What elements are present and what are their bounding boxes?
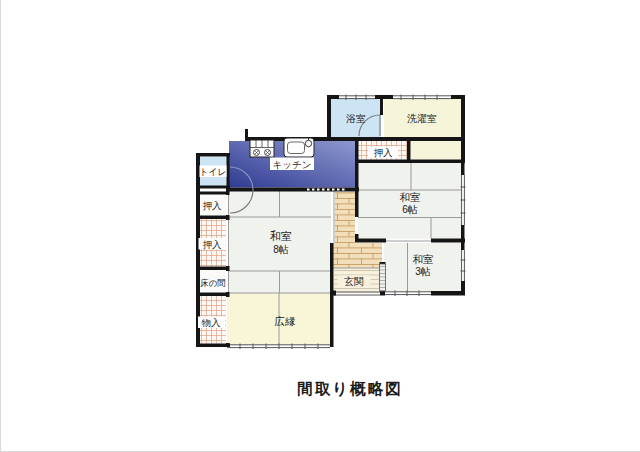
floorplan-page: 浴室 洗濯室 押入 キッチン トイレ 押入 押入 床の間 物入 和室 8帖 和室…: [0, 0, 640, 452]
veranda-label: 広縁: [275, 315, 297, 327]
washitsu-6-label: 和室: [400, 191, 421, 203]
laundry-label: 洗濯室: [407, 113, 437, 124]
closet-upper-label: 押入: [374, 147, 394, 158]
toilet-label: トイレ: [199, 167, 227, 177]
washitsu-3-size: 3帖: [415, 266, 431, 277]
page-title: 間取り概略図: [297, 380, 402, 397]
washitsu-8-size: 8帖: [273, 244, 289, 255]
kitchen-label: キッチン: [273, 159, 312, 170]
tokonoma-label: 床の間: [200, 278, 226, 288]
sink-icon: [284, 138, 314, 158]
washitsu-8-label: 和室: [270, 230, 292, 242]
washitsu-3-label: 和室: [413, 253, 434, 265]
sliding-door: [305, 188, 347, 192]
entrance-door: [380, 264, 386, 291]
hallway-floor-lower: [333, 243, 383, 268]
closet-left-2-label: 押入: [203, 239, 223, 250]
storage-label: 物入: [202, 317, 222, 328]
floorplan-drawing: 浴室 洗濯室 押入 キッチン トイレ 押入 押入 床の間 物入 和室 8帖 和室…: [1, 0, 640, 452]
stove-icon: [250, 140, 274, 157]
bath-label: 浴室: [346, 113, 366, 124]
entrance-label: 玄関: [344, 276, 364, 287]
closet-left-1-label: 押入: [203, 200, 223, 211]
washitsu-6-size: 6帖: [402, 204, 418, 215]
closet-upper-right: [411, 141, 462, 160]
hallway-floor: [335, 192, 355, 243]
